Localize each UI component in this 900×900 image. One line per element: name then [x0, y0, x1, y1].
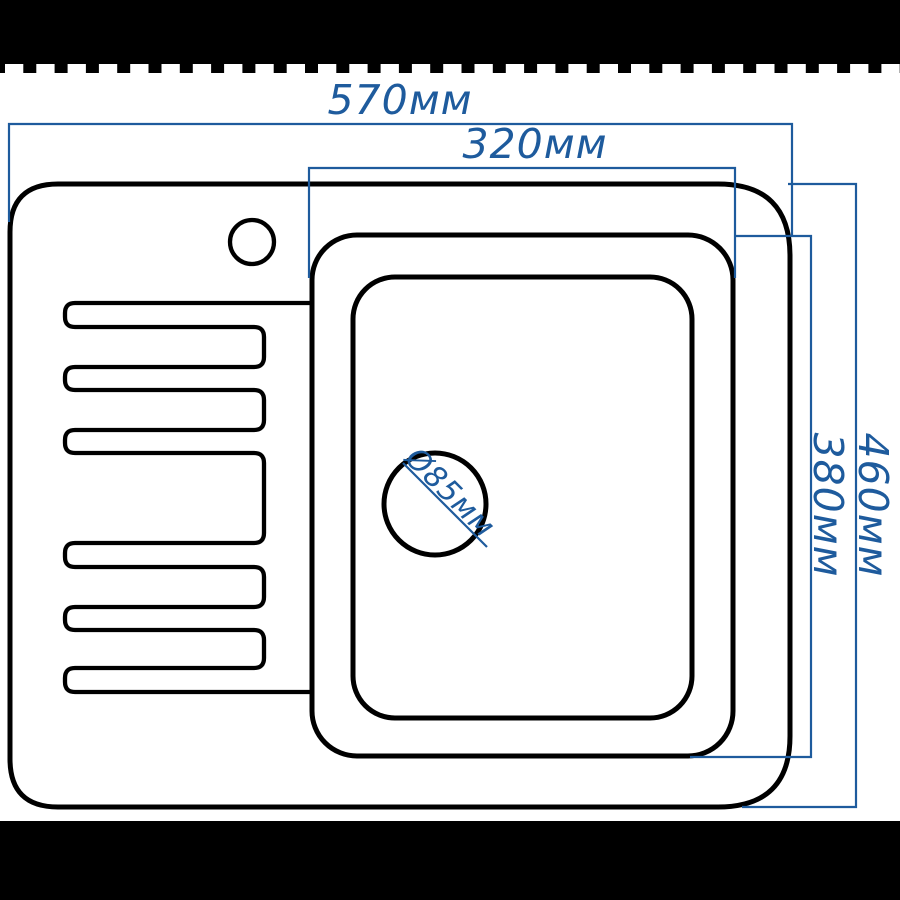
sink-technical-drawing: 570мм 320мм 460мм 380мм Ø85мм [0, 0, 900, 900]
dim-label-bowl-width: 320мм [462, 120, 607, 168]
sink-drawing-page: 570мм 320мм 460мм 380мм Ø85мм [0, 0, 900, 900]
bottom-frame-bar [0, 821, 900, 900]
dim-label-overall-width: 570мм [327, 76, 472, 124]
dim-line-overall-width [9, 124, 792, 236]
dim-label-overall-depth: 460мм [849, 432, 897, 577]
faucet-hole [230, 220, 274, 264]
dim-line-bowl-depth [690, 236, 811, 757]
dim-label-bowl-depth: 380мм [804, 432, 852, 577]
bowl-inner-rim [353, 277, 692, 718]
drainboard-grooves [65, 303, 312, 692]
bowl-outer-rim [312, 235, 733, 756]
top-frame-bar [0, 0, 900, 64]
